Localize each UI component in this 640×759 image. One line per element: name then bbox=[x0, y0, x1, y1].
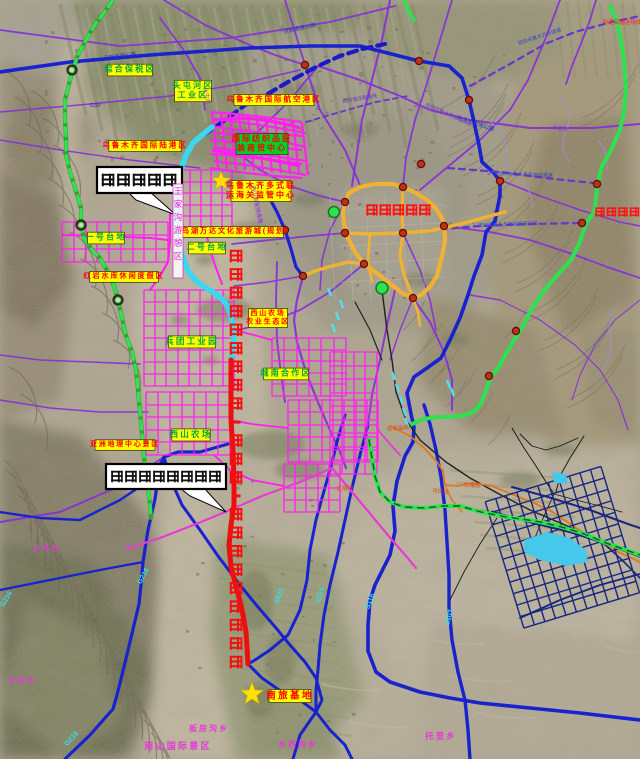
svg-text:红岩水库休闲度假区: 红岩水库休闲度假区 bbox=[84, 271, 165, 280]
svg-text:国际纺织品服: 国际纺织品服 bbox=[232, 133, 292, 143]
svg-text:乌鲁木齐国际航空港区: 乌鲁木齐国际航空港区 bbox=[227, 93, 322, 103]
svg-text:南山国际景区: 南山国际景区 bbox=[144, 740, 212, 751]
svg-text:板房沟乡: 板房沟乡 bbox=[189, 723, 229, 733]
svg-text:乌鲁木齐多式联: 乌鲁木齐多式联 bbox=[226, 180, 296, 190]
svg-text:二号台地: 二号台地 bbox=[187, 242, 228, 252]
svg-text:西山农场: 西山农场 bbox=[170, 428, 213, 439]
svg-text:兵团工业园: 兵团工业园 bbox=[165, 335, 219, 346]
svg-text:农业生态区: 农业生态区 bbox=[245, 316, 290, 325]
svg-text:一号台地: 一号台地 bbox=[86, 232, 127, 242]
svg-text:西山农场: 西山农场 bbox=[251, 308, 286, 317]
svg-text:家: 家 bbox=[174, 199, 183, 209]
svg-text:白鸟湖万达文化旅游城(规划): 白鸟湖万达文化旅游城(规划) bbox=[173, 226, 289, 235]
svg-text:区: 区 bbox=[174, 251, 183, 261]
svg-text:王: 王 bbox=[174, 186, 183, 196]
svg-text:城南合作区: 城南合作区 bbox=[260, 368, 311, 378]
svg-text:装商贸中心: 装商贸中心 bbox=[236, 142, 287, 152]
svg-text:亚洲地理中心景区: 亚洲地理中心景区 bbox=[90, 439, 160, 448]
svg-text:G30: G30 bbox=[90, 103, 100, 109]
svg-text:小平沙: 小平沙 bbox=[33, 543, 61, 553]
svg-text:托里乡: 托里乡 bbox=[425, 731, 457, 741]
svg-text:运海关监管中心: 运海关监管中心 bbox=[226, 189, 296, 199]
svg-text:游: 游 bbox=[174, 225, 183, 235]
svg-text:乌鲁木齐国际陆港区: 乌鲁木齐国际陆港区 bbox=[102, 139, 187, 149]
svg-text:新建高速连接线: 新建高速连接线 bbox=[603, 18, 640, 26]
svg-text:水西沟乡: 水西沟乡 bbox=[277, 739, 318, 749]
svg-text:平顶沙: 平顶沙 bbox=[8, 676, 36, 685]
svg-text:南旅基地: 南旅基地 bbox=[266, 689, 314, 701]
svg-text:沟: 沟 bbox=[174, 212, 183, 222]
svg-text:综合保税区: 综合保税区 bbox=[104, 64, 155, 74]
svg-text:憩: 憩 bbox=[174, 238, 183, 248]
